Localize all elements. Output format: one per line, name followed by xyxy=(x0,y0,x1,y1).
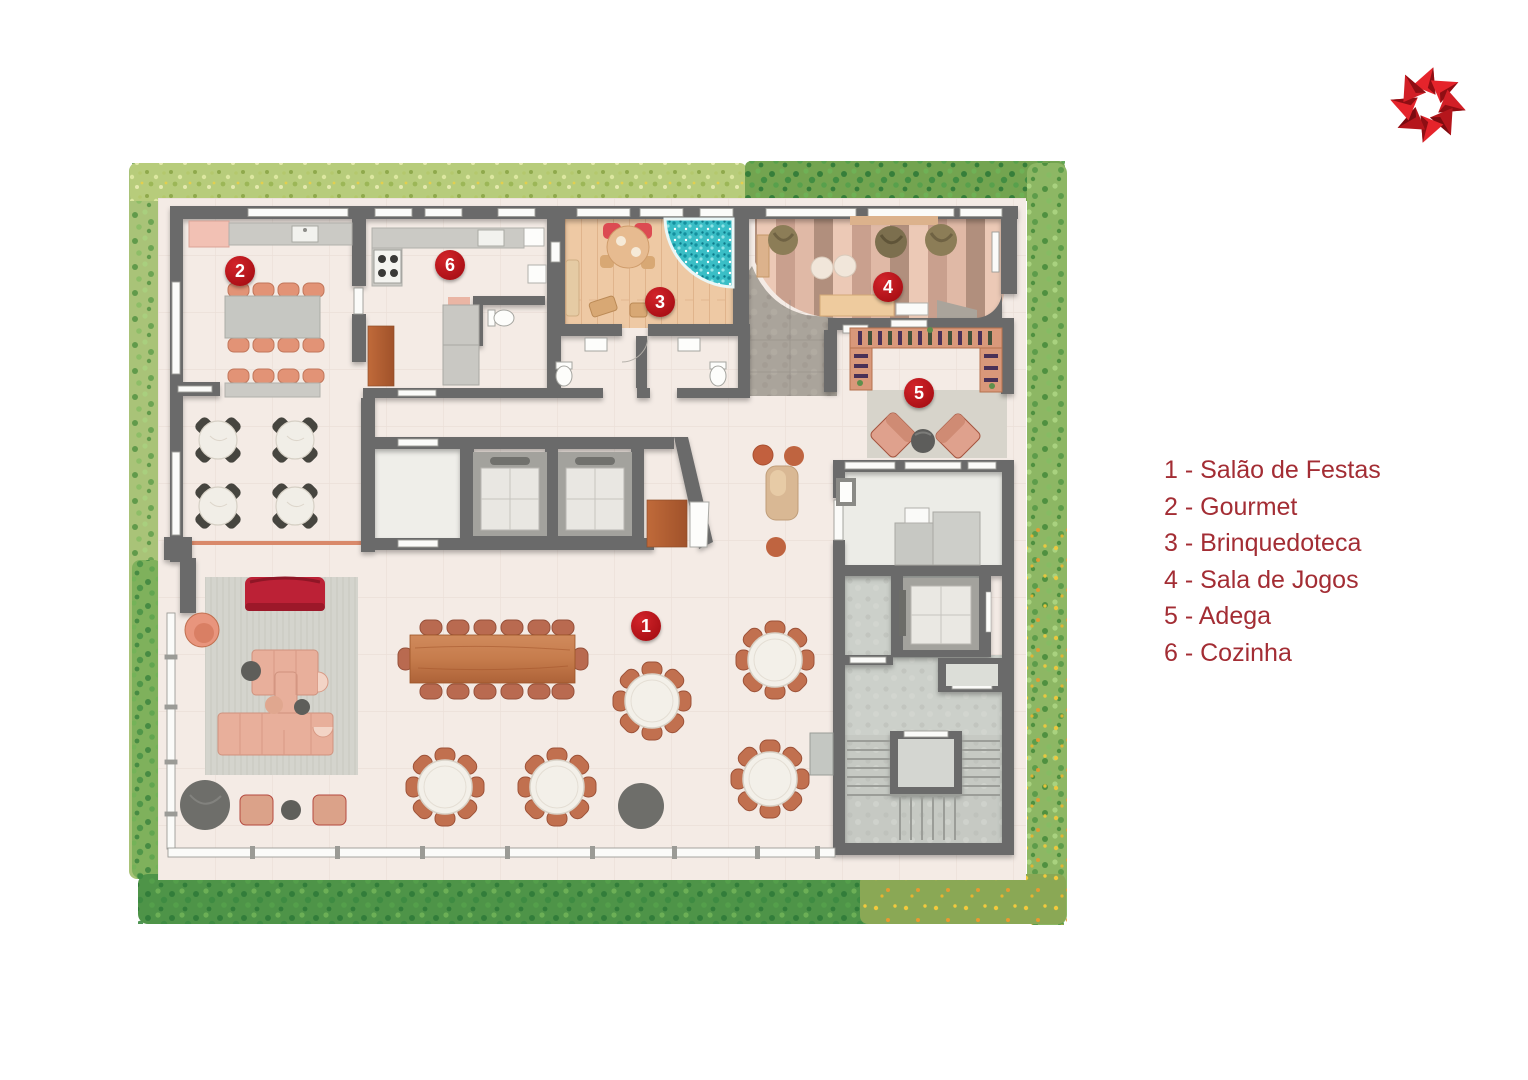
round-party-table xyxy=(736,621,814,699)
large-pouf xyxy=(618,783,664,829)
legend-item-sala-de-jogos: 4 - Sala de Jogos xyxy=(1164,562,1381,599)
gourmet-counter xyxy=(229,223,352,245)
ottoman xyxy=(265,696,283,714)
legend-item-brinquedoteca: 3 - Brinquedoteca xyxy=(1164,525,1381,562)
eight-point-star-logo-icon xyxy=(1384,58,1472,152)
plan-marker-2: 2 xyxy=(225,256,255,286)
cafe-table xyxy=(270,481,319,530)
small-pouf xyxy=(281,800,301,820)
elevator-car xyxy=(473,452,547,536)
kitchen-stove xyxy=(374,250,401,283)
legend: 1 - Salão de Festas 2 - Gourmet 3 - Brin… xyxy=(1164,452,1381,671)
plan-marker-5: 5 xyxy=(904,378,934,408)
legend-item-salao-de-festas: 1 - Salão de Festas xyxy=(1164,452,1381,489)
plan-marker-4: 4 xyxy=(873,272,903,302)
round-party-table xyxy=(406,748,484,826)
legend-item-adega: 5 - Adega xyxy=(1164,598,1381,635)
lounge-sofa-red xyxy=(245,577,325,611)
games-shelf xyxy=(850,216,938,225)
large-pouf xyxy=(180,780,230,830)
cafe-table xyxy=(193,415,242,464)
page: 1 2 3 4 5 6 1 - Salão de Festas 2 - Gour… xyxy=(0,0,1528,1080)
coffee-table xyxy=(241,661,261,681)
round-party-table xyxy=(731,740,809,818)
plan-marker-3: 3 xyxy=(645,287,675,317)
kitchen-wc-toilet xyxy=(488,310,514,326)
square-pouf xyxy=(313,795,346,825)
hall-wood-cabinet xyxy=(647,500,687,547)
elevator-car xyxy=(558,452,632,536)
service-counter xyxy=(895,523,933,565)
star-arms xyxy=(1386,63,1471,148)
service-counter xyxy=(933,512,980,565)
service-elevator xyxy=(899,578,991,650)
round-party-table xyxy=(613,662,691,740)
legend-item-cozinha: 6 - Cozinha xyxy=(1164,635,1381,672)
playroom-bench xyxy=(566,260,579,316)
coffee-table xyxy=(294,699,310,715)
kitchen-wood-island xyxy=(368,326,394,386)
pouf xyxy=(834,255,856,277)
kitchen-sink xyxy=(478,230,504,246)
banquet-table xyxy=(398,620,588,699)
plan-marker-6: 6 xyxy=(435,250,465,280)
round-party-table xyxy=(518,748,596,826)
square-pouf xyxy=(240,795,273,825)
gourmet-pink-counter xyxy=(189,221,229,247)
cafe-table xyxy=(193,481,242,530)
playroom-table xyxy=(600,223,655,269)
legend-item-gourmet: 2 - Gourmet xyxy=(1164,489,1381,526)
plan-marker-1: 1 xyxy=(631,611,661,641)
pouf xyxy=(811,257,833,279)
cafe-table xyxy=(270,415,319,464)
